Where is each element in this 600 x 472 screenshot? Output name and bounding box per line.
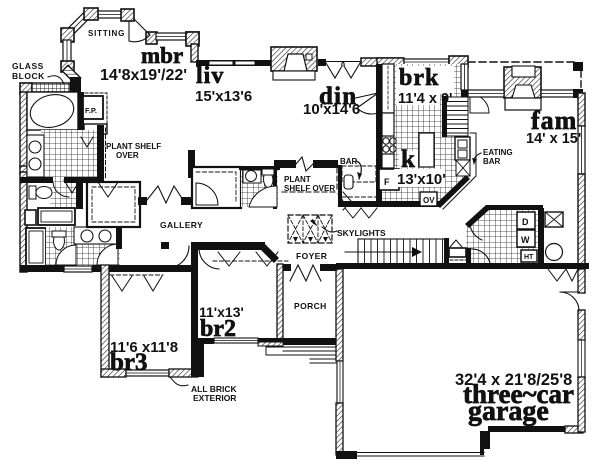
svg-text:BAR: BAR [483,157,501,166]
svg-text:SHELF OVER: SHELF OVER [284,184,335,193]
svg-text:FOYER: FOYER [296,251,327,261]
svg-text:EXTERIOR: EXTERIOR [193,393,236,403]
svg-text:SITTING: SITTING [88,29,125,38]
svg-text:mbr: mbr [141,43,183,68]
svg-text:14'8x19'/22': 14'8x19'/22' [100,67,187,84]
svg-text:SKYLIGHTS: SKYLIGHTS [337,228,386,238]
svg-text:GLASS: GLASS [12,61,44,71]
svg-text:br3: br3 [110,349,148,376]
svg-text:OV: OV [423,196,435,205]
svg-text:PLANT SHELF: PLANT SHELF [106,142,161,151]
svg-text:brk: brk [399,65,439,91]
svg-text:k: k [401,146,415,173]
svg-text:garage: garage [468,396,549,427]
svg-text:11'4 x 9': 11'4 x 9' [398,91,452,107]
svg-text:br2: br2 [200,316,236,342]
svg-text:liv: liv [196,63,224,89]
svg-text:F: F [384,177,390,187]
svg-text:15'x13'6: 15'x13'6 [195,88,252,105]
svg-text:13'x10': 13'x10' [397,171,446,188]
svg-text:BAR: BAR [340,157,358,166]
svg-text:F.P.: F.P. [85,106,97,115]
svg-text:EATING: EATING [483,148,513,157]
svg-text:14' x 15': 14' x 15' [526,131,581,147]
svg-text:10'x14'6: 10'x14'6 [303,101,360,118]
svg-text:BLOCK: BLOCK [12,71,45,81]
svg-text:PLANT: PLANT [284,175,311,184]
svg-text:OVER: OVER [116,151,139,160]
svg-text:PORCH: PORCH [294,301,327,311]
svg-text:D: D [522,217,529,227]
svg-text:HT: HT [524,254,534,261]
svg-text:GALLERY: GALLERY [160,220,203,230]
svg-text:W: W [521,235,530,245]
